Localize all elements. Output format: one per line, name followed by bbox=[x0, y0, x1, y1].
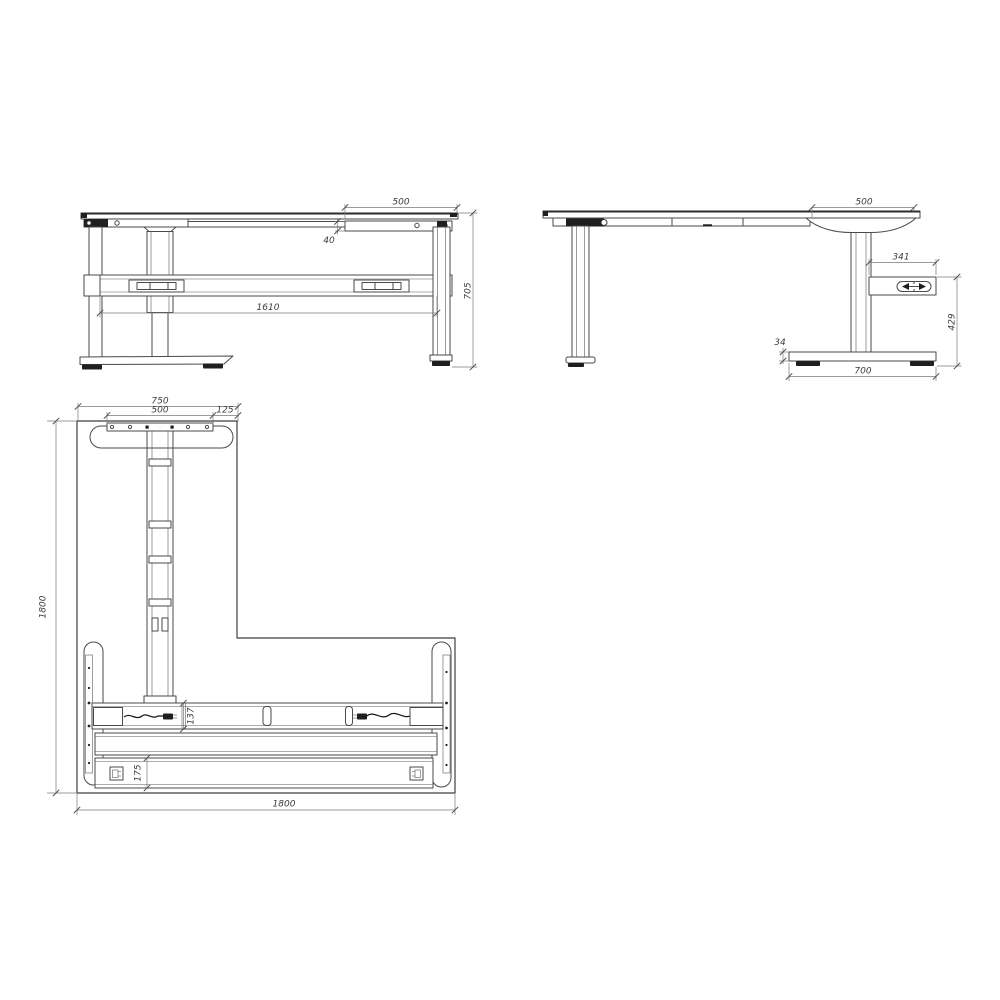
beam-bracket-left bbox=[129, 280, 184, 292]
desktop-bracket bbox=[806, 218, 916, 233]
plan-view: 750 500 125 1800 137 bbox=[39, 397, 459, 816]
column-mount-plate bbox=[144, 227, 176, 232]
lower-rail-plan bbox=[95, 758, 433, 788]
dim-label-plan-175: 175 bbox=[134, 764, 144, 781]
stiffener-rail-plan bbox=[95, 733, 437, 755]
return-foot-plan bbox=[90, 423, 233, 448]
dim-label-plan-1800-bottom: 1800 bbox=[273, 800, 296, 810]
dim-plan-desk-length: 1800 bbox=[74, 794, 458, 815]
dim-label-side-500: 500 bbox=[855, 198, 872, 208]
desktop-side bbox=[543, 211, 920, 218]
beam-joint-center bbox=[263, 707, 271, 726]
frame-rail-front bbox=[84, 219, 452, 232]
motor-box-right bbox=[410, 708, 443, 726]
crossbeam-plan bbox=[92, 703, 443, 729]
dim-label-plan-500: 500 bbox=[151, 406, 168, 416]
dim-label-plan-125: 125 bbox=[216, 406, 233, 416]
dim-plan-return-length: 1800 bbox=[39, 418, 78, 796]
drawing-sheet: 500 40 1610 705 bbox=[0, 0, 1000, 1000]
dim-label-front-705: 705 bbox=[464, 282, 474, 299]
side-elevation-view: 500 341 429 34 bbox=[543, 198, 962, 382]
frame-rail-side bbox=[553, 218, 810, 227]
desktop-front bbox=[81, 213, 458, 219]
dim-label-side-34: 34 bbox=[774, 338, 786, 348]
corner-bracket-right bbox=[410, 767, 423, 780]
dim-front-overall-height: 705 bbox=[452, 210, 478, 370]
technical-drawing-canvas: 500 40 1610 705 bbox=[0, 0, 1000, 1000]
dim-front-frame-height: 40 bbox=[323, 218, 345, 246]
beam-bracket-right bbox=[354, 280, 409, 292]
front-elevation-view: 500 40 1610 705 bbox=[80, 198, 478, 371]
dim-label-plan-1800-left: 1800 bbox=[39, 595, 49, 618]
right-column-front bbox=[430, 227, 452, 366]
dim-label-front-500: 500 bbox=[392, 198, 409, 208]
dim-side-control-box: 341 bbox=[866, 253, 939, 276]
motor-box-left bbox=[94, 708, 123, 726]
crossbeam-front bbox=[84, 275, 452, 296]
dim-label-front-1610: 1610 bbox=[257, 303, 280, 313]
dim-label-side-700: 700 bbox=[854, 367, 871, 377]
return-column-plan bbox=[144, 431, 176, 703]
dim-label-side-341: 341 bbox=[892, 253, 909, 263]
beam-joint-right bbox=[346, 707, 353, 726]
dim-label-side-429: 429 bbox=[948, 313, 958, 330]
dim-label-front-40: 40 bbox=[323, 236, 335, 246]
left-foot-front bbox=[80, 356, 233, 370]
dim-side-foot-height: 34 bbox=[774, 338, 789, 364]
left-leg-side bbox=[566, 226, 595, 367]
dim-side-leg-height: 429 bbox=[937, 274, 962, 369]
dim-label-plan-137: 137 bbox=[187, 707, 197, 724]
corner-bracket-left bbox=[110, 767, 123, 780]
foot-side bbox=[789, 352, 936, 366]
control-box-side bbox=[869, 277, 936, 295]
